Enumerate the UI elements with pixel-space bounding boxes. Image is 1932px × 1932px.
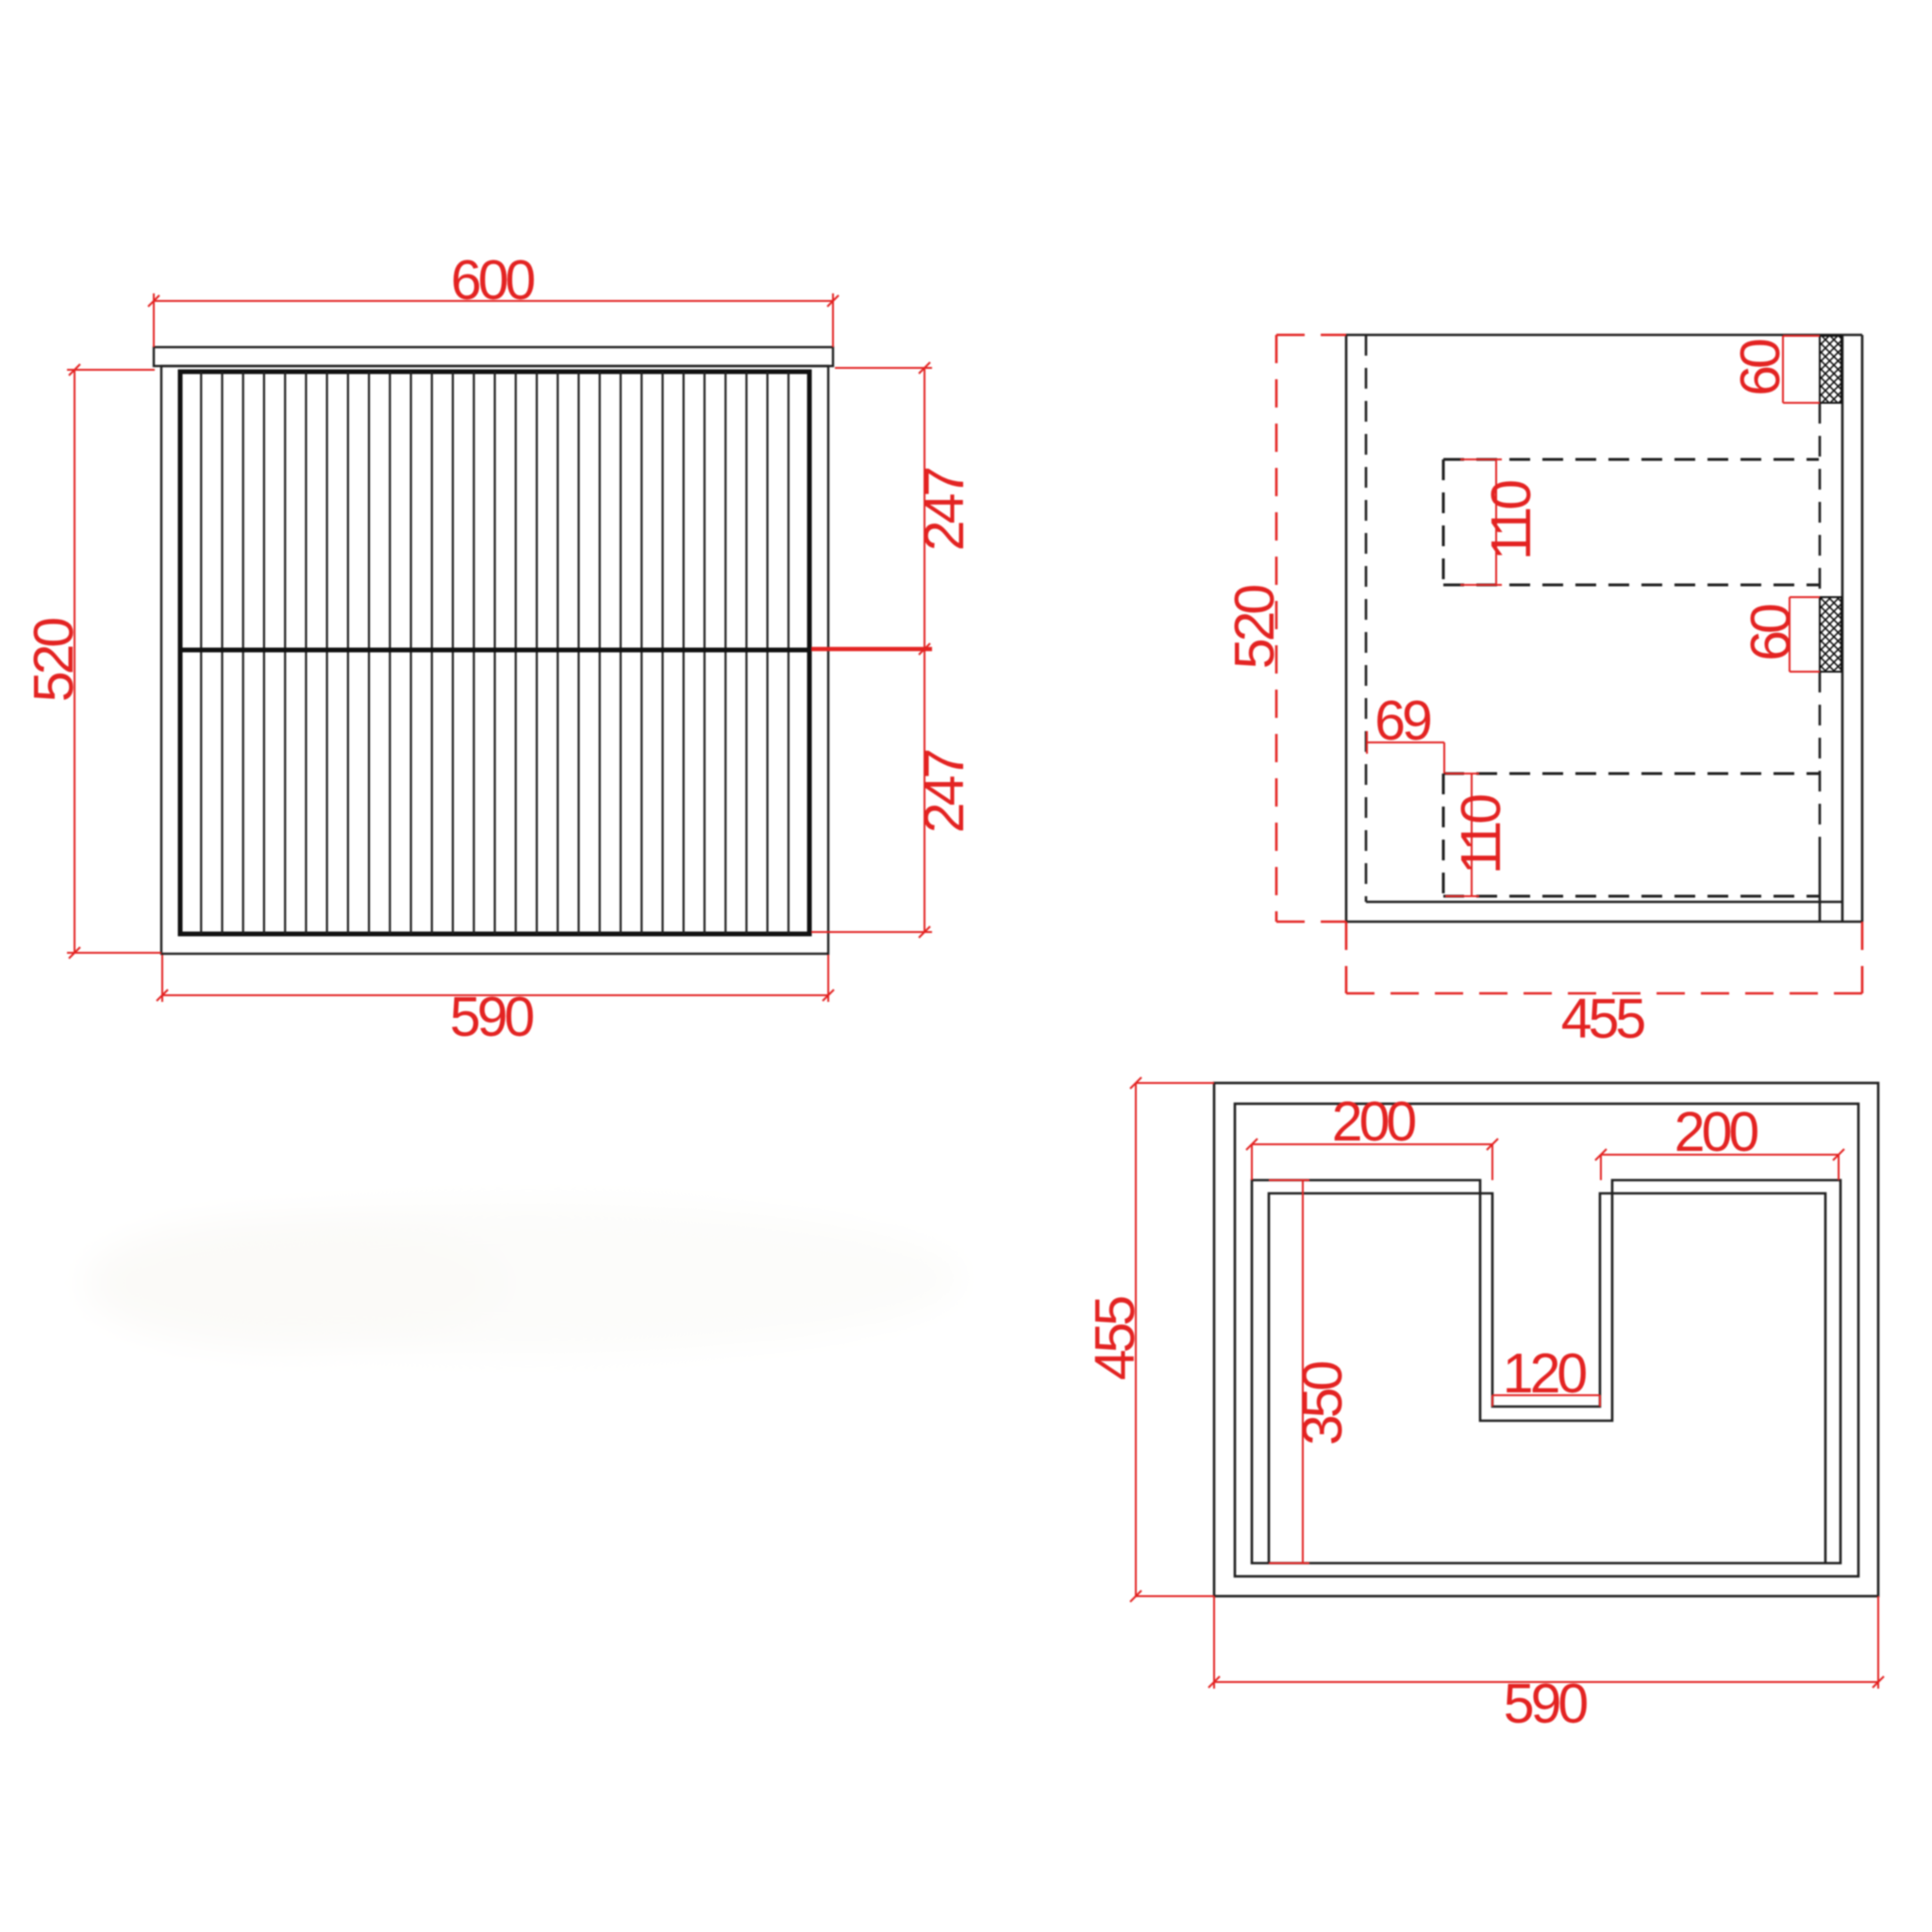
svg-text:69: 69 bbox=[1374, 690, 1431, 752]
svg-text:590: 590 bbox=[1504, 1673, 1588, 1735]
svg-text:520: 520 bbox=[23, 619, 85, 703]
svg-text:200: 200 bbox=[1674, 1101, 1758, 1163]
svg-text:200: 200 bbox=[1332, 1091, 1416, 1153]
svg-text:60: 60 bbox=[1740, 605, 1802, 661]
svg-text:60: 60 bbox=[1729, 340, 1791, 396]
svg-text:520: 520 bbox=[1224, 586, 1286, 670]
svg-text:247: 247 bbox=[913, 469, 975, 552]
svg-text:455: 455 bbox=[1561, 988, 1645, 1050]
svg-text:350: 350 bbox=[1291, 1362, 1354, 1446]
svg-text:110: 110 bbox=[1450, 795, 1512, 874]
svg-text:455: 455 bbox=[1084, 1297, 1146, 1381]
svg-text:120: 120 bbox=[1503, 1342, 1587, 1405]
svg-text:600: 600 bbox=[451, 249, 535, 311]
svg-text:110: 110 bbox=[1480, 481, 1542, 560]
svg-text:247: 247 bbox=[913, 751, 975, 834]
svg-text:590: 590 bbox=[450, 986, 534, 1048]
